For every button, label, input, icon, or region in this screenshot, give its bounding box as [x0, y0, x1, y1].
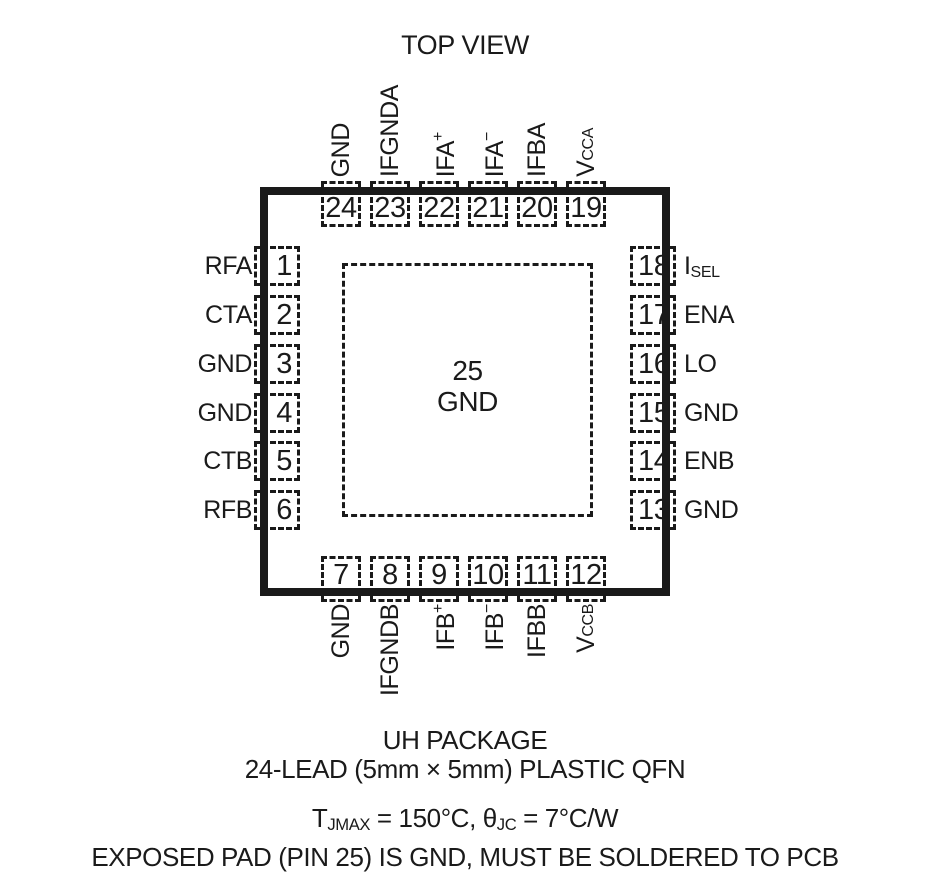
pin-13-label: GND [684, 495, 738, 525]
pin-20: 20 [517, 181, 557, 227]
pin-2-label: CTA [205, 300, 252, 330]
pin-13-number: 13 [638, 496, 669, 525]
pin-7-label: GND [326, 604, 356, 658]
pin-4: 4 [254, 393, 300, 433]
pin-3: 3 [254, 344, 300, 384]
pin-3-label: GND [198, 349, 252, 379]
pin-12-label: VCCB [571, 604, 604, 653]
pin-5-number: 5 [276, 447, 292, 476]
pin-16: 16 [630, 344, 676, 384]
exposed-pad-number: 25 [437, 355, 498, 386]
exposed-pad: 25 GND [342, 263, 593, 517]
pin-24-number: 24 [325, 194, 356, 223]
package-title-block: UH PACKAGE 24-LEAD (5mm × 5mm) PLASTIC Q… [0, 726, 930, 784]
pin-9-number: 9 [431, 561, 447, 590]
exposed-pad-label: GND [437, 386, 498, 417]
pin-9: 9 [419, 556, 459, 602]
pin-15: 15 [630, 393, 676, 433]
pin-1: 1 [254, 246, 300, 286]
pin-18-number: 18 [638, 252, 669, 281]
pin-14-label: ENB [684, 446, 734, 476]
pin-14: 14 [630, 441, 676, 481]
pin-22: 22 [419, 181, 459, 227]
pin-11-number: 11 [522, 561, 551, 590]
pin-1-number: 1 [276, 252, 292, 281]
pin-18-label: ISEL [684, 251, 720, 281]
pin-6-label: RFB [203, 495, 252, 525]
pin-2: 2 [254, 295, 300, 335]
pin-9-label: IFB+ [424, 604, 461, 651]
pin-19-number: 19 [570, 194, 601, 223]
package-notes-block: TJMAX = 150°C, θJC = 7°C/W EXPOSED PAD (… [0, 802, 930, 874]
pin-7: 7 [321, 556, 361, 602]
pin-4-label: GND [198, 398, 252, 428]
pin-8-label: IFGNDB [375, 604, 405, 696]
pin-24-label: GND [326, 123, 356, 177]
pin-6-number: 6 [276, 496, 292, 525]
pin-4-number: 4 [276, 399, 292, 428]
pin-23-label: IFGNDA [375, 85, 405, 177]
pin-22-label: IFA+ [424, 132, 461, 177]
pin-7-number: 7 [333, 561, 349, 590]
pin-16-label: LO [684, 349, 717, 379]
pin-24: 24 [321, 181, 361, 227]
pin-3-number: 3 [276, 350, 292, 379]
pin-2-number: 2 [276, 301, 292, 330]
pin-15-number: 15 [638, 399, 669, 428]
pin-10-label: IFB− [473, 604, 510, 651]
pin-23: 23 [370, 181, 410, 227]
pin-21-number: 21 [472, 194, 503, 223]
pin-17: 17 [630, 295, 676, 335]
pin-14-number: 14 [638, 447, 669, 476]
pin-16-number: 16 [638, 350, 669, 379]
pin-12-number: 12 [570, 561, 601, 590]
pin-10-number: 10 [472, 561, 503, 590]
pin-20-label: IFBA [522, 123, 552, 177]
pin-22-number: 22 [423, 194, 454, 223]
exposed-pad-note: EXPOSED PAD (PIN 25) IS GND, MUST BE SOL… [0, 841, 930, 874]
pin-1-label: RFA [205, 251, 252, 281]
pin-21-label: IFA− [473, 132, 510, 177]
pin-19: 19 [566, 181, 606, 227]
package-description: 24-LEAD (5mm × 5mm) PLASTIC QFN [0, 755, 930, 784]
pin-18: 18 [630, 246, 676, 286]
exposed-pad-text: 25 GND [437, 355, 498, 417]
pin-15-label: GND [684, 398, 738, 428]
pin-21: 21 [468, 181, 508, 227]
pin-23-number: 23 [374, 194, 405, 223]
pin-20-number: 20 [521, 194, 552, 223]
pin-8-number: 8 [382, 561, 398, 590]
pin-11-label: IFBB [522, 604, 552, 658]
pin-12: 12 [566, 556, 606, 602]
thermal-spec: TJMAX = 150°C, θJC = 7°C/W [0, 802, 930, 841]
pin-17-number: 17 [638, 301, 669, 330]
package-name: UH PACKAGE [0, 726, 930, 755]
pin-8: 8 [370, 556, 410, 602]
pin-10: 10 [468, 556, 508, 602]
diagram-title: TOP VIEW [260, 28, 670, 62]
pin-17-label: ENA [684, 300, 734, 330]
pin-19-label: VCCA [571, 128, 604, 177]
pin-11: 11 [517, 556, 557, 602]
pin-5-label: CTB [203, 446, 252, 476]
pin-13: 13 [630, 490, 676, 530]
qfn-pinout-diagram: TOP VIEW 25 GND UH PACKAGE 24-LEAD (5mm … [0, 0, 930, 887]
pin-6: 6 [254, 490, 300, 530]
pin-5: 5 [254, 441, 300, 481]
